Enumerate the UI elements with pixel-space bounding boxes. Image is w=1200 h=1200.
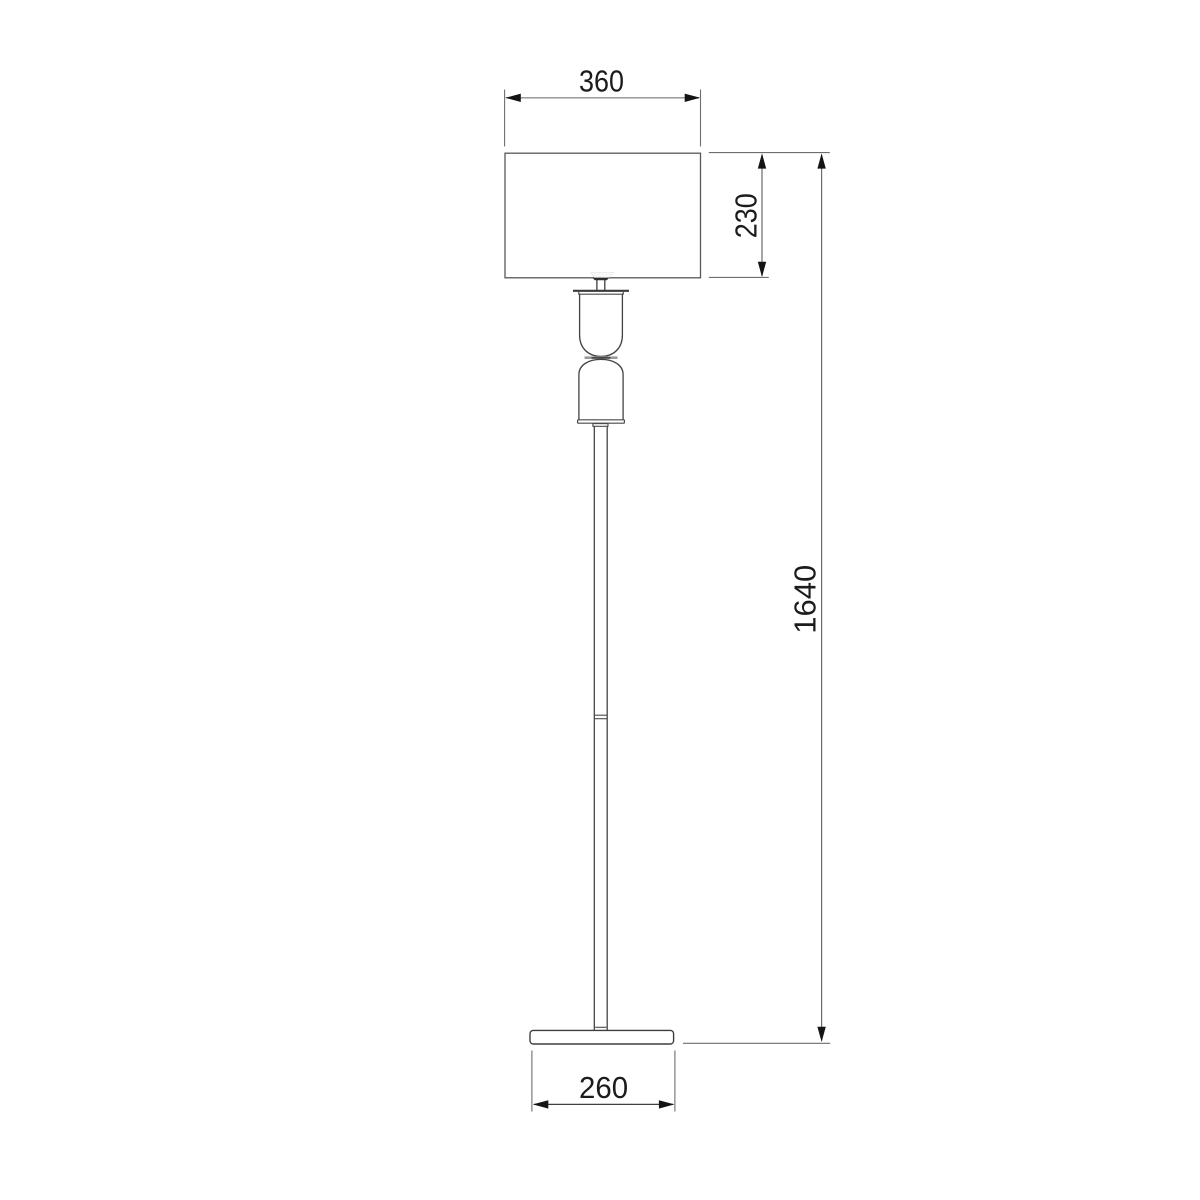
svg-text:360: 360	[579, 65, 624, 99]
svg-text:1640: 1640	[787, 565, 822, 634]
svg-text:230: 230	[730, 193, 764, 238]
svg-text:260: 260	[579, 1071, 628, 1105]
